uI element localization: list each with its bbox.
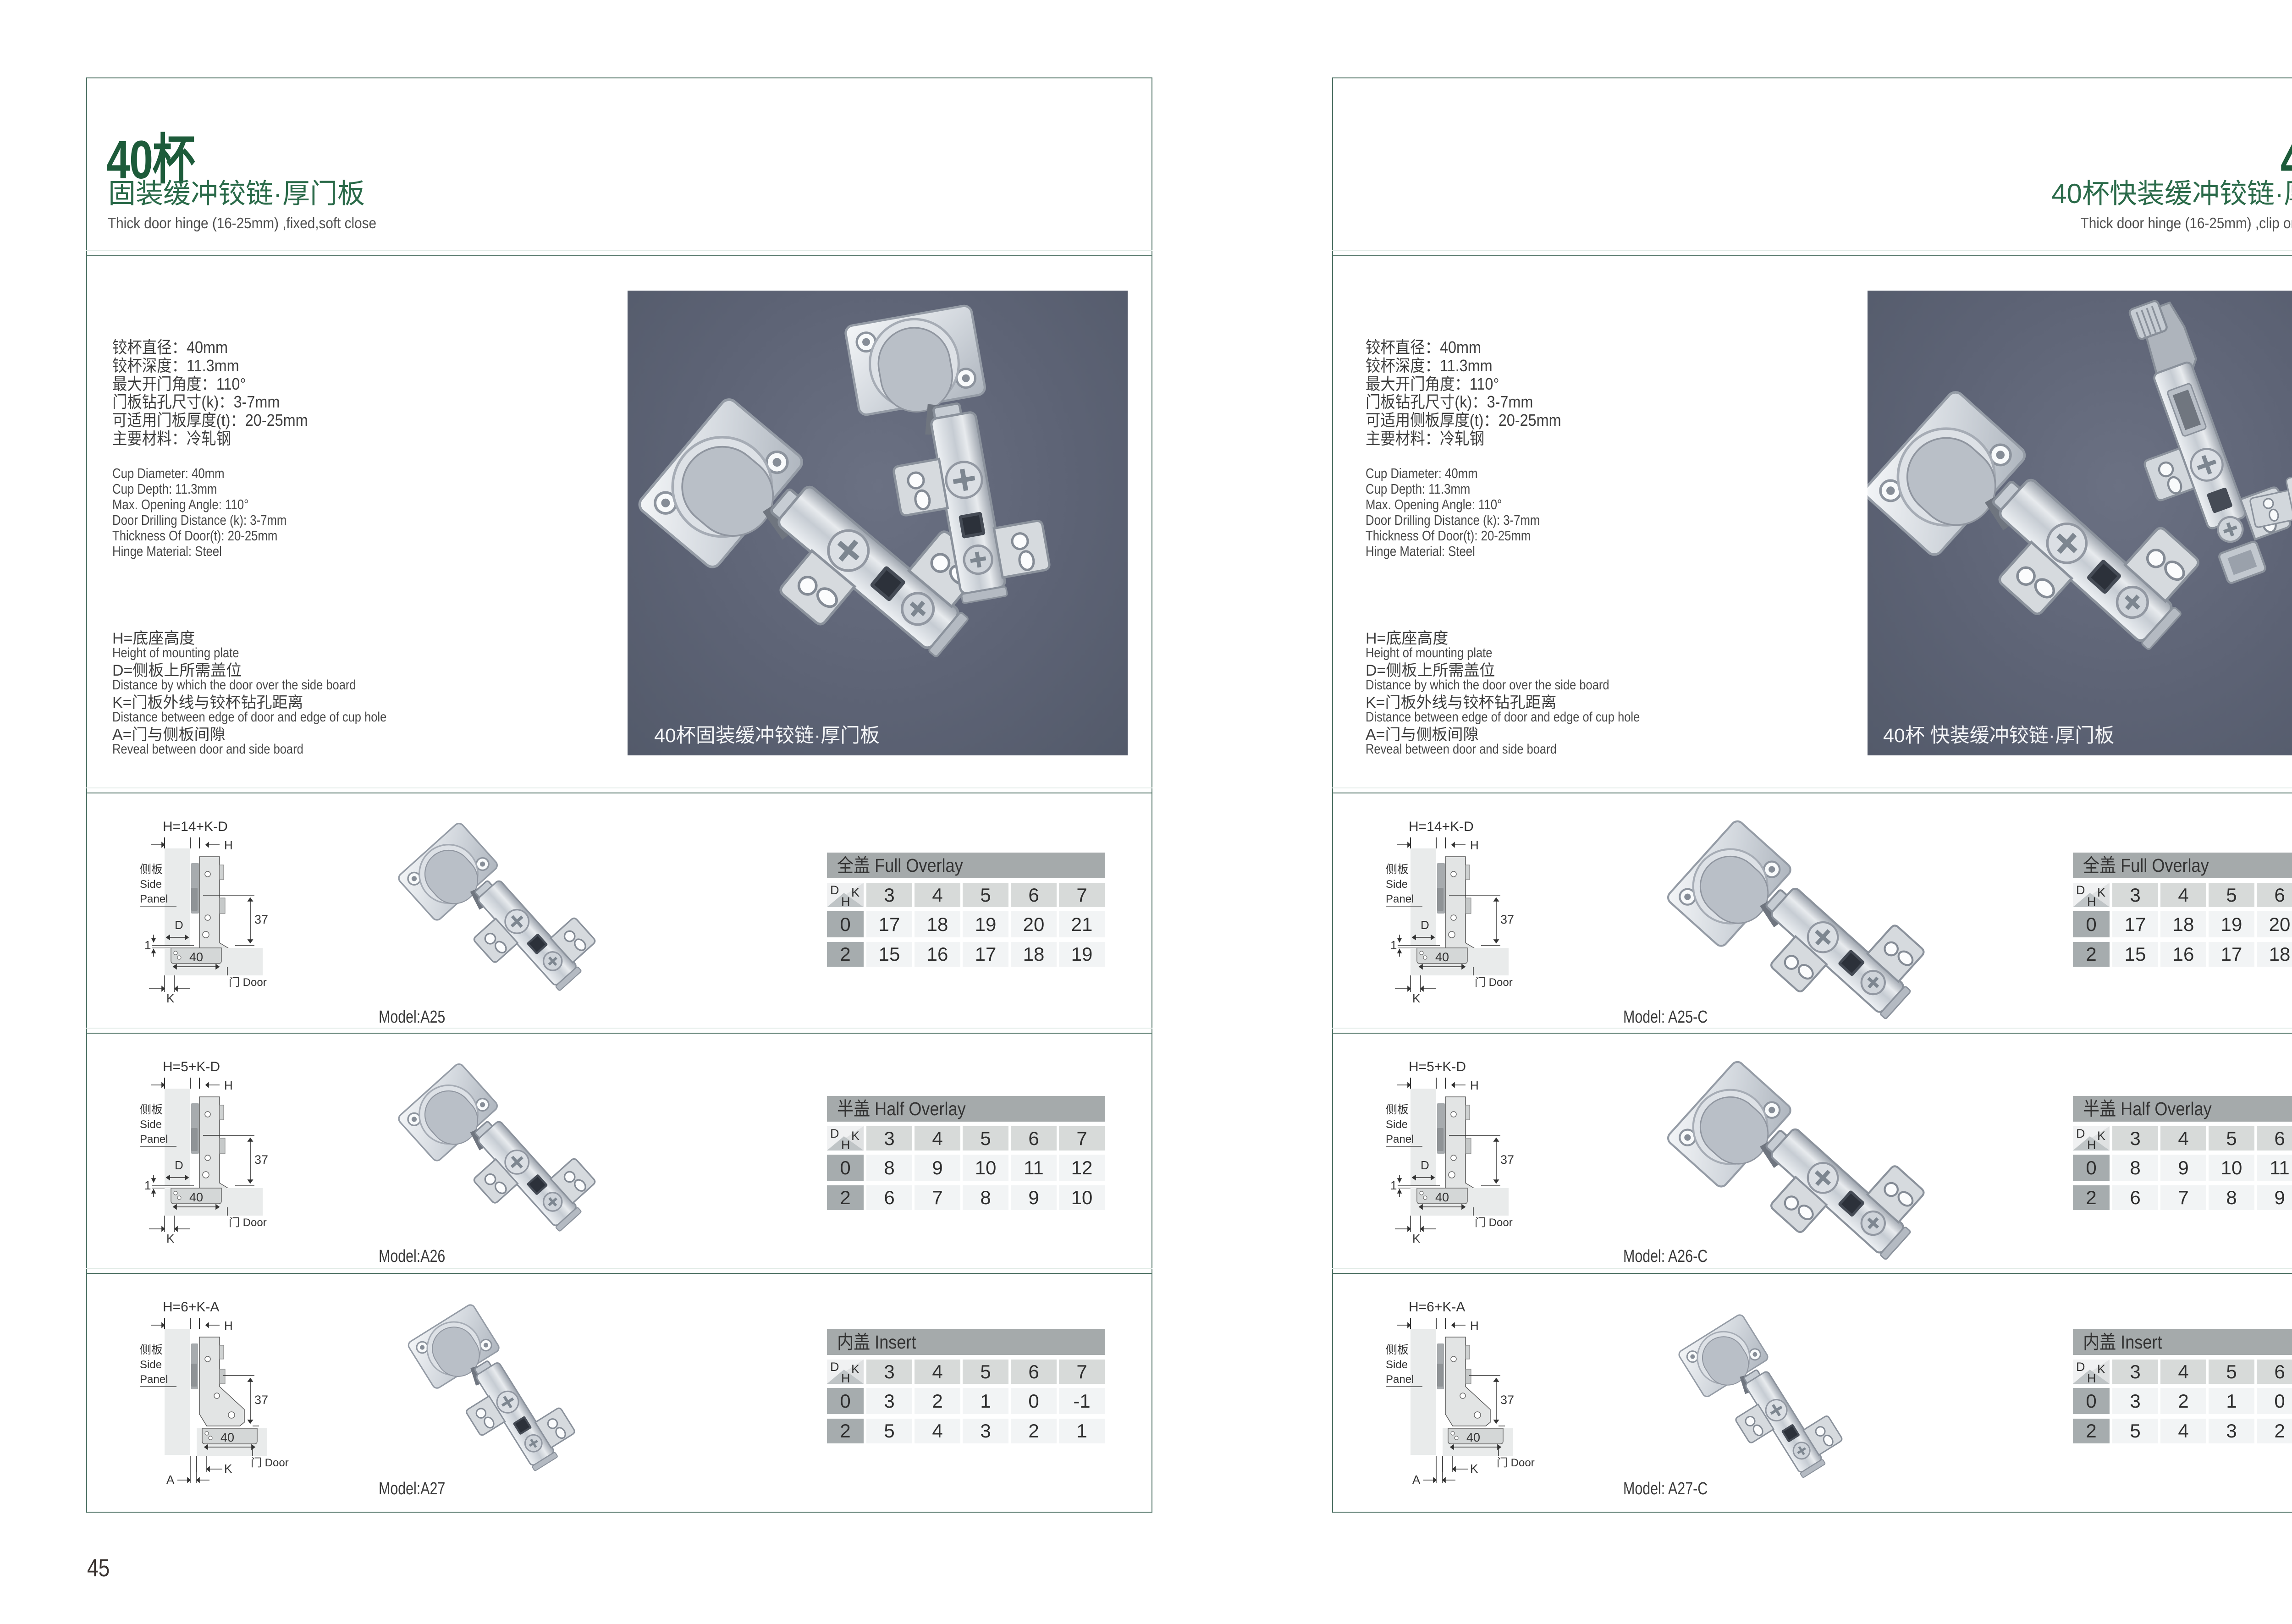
svg-text:40: 40 bbox=[189, 950, 203, 964]
svg-text:Panel: Panel bbox=[140, 893, 168, 905]
svg-text:Panel: Panel bbox=[1386, 1133, 1414, 1145]
svg-text:A: A bbox=[1412, 1473, 1421, 1486]
svg-text:A: A bbox=[166, 1473, 175, 1486]
svg-text:门 Door: 门 Door bbox=[229, 976, 267, 989]
svg-text:40: 40 bbox=[1435, 950, 1449, 964]
svg-text:D: D bbox=[2076, 1360, 2085, 1374]
svg-text:门 Door: 门 Door bbox=[1475, 1217, 1513, 1229]
svg-text:Panel: Panel bbox=[1386, 1373, 1414, 1386]
svg-text:H: H bbox=[1470, 1079, 1479, 1092]
svg-text:H=14+K-D: H=14+K-D bbox=[163, 819, 228, 834]
svg-text:40: 40 bbox=[1435, 1190, 1449, 1204]
svg-text:37: 37 bbox=[1500, 1153, 1514, 1167]
svg-text:H: H bbox=[224, 1319, 233, 1332]
svg-text:H: H bbox=[224, 838, 233, 852]
svg-text:门 Door: 门 Door bbox=[251, 1457, 289, 1469]
svg-text:H: H bbox=[841, 1138, 850, 1151]
svg-text:37: 37 bbox=[254, 1393, 268, 1407]
svg-text:K: K bbox=[2097, 1362, 2105, 1376]
svg-text:40: 40 bbox=[220, 1431, 234, 1444]
svg-text:1: 1 bbox=[144, 1178, 151, 1192]
svg-text:H=6+K-A: H=6+K-A bbox=[163, 1299, 219, 1315]
svg-text:Side: Side bbox=[1386, 1359, 1408, 1371]
svg-text:37: 37 bbox=[254, 1153, 268, 1167]
svg-text:侧板: 侧板 bbox=[1386, 1343, 1409, 1356]
svg-text:H: H bbox=[2087, 1138, 2096, 1151]
svg-text:1: 1 bbox=[144, 938, 151, 952]
svg-text:H: H bbox=[2087, 895, 2096, 907]
svg-text:37: 37 bbox=[1500, 1393, 1514, 1407]
svg-text:Side: Side bbox=[1386, 878, 1408, 891]
svg-text:D: D bbox=[830, 1127, 839, 1140]
svg-text:Side: Side bbox=[1386, 1118, 1408, 1131]
svg-text:Side: Side bbox=[140, 1118, 162, 1131]
svg-text:K: K bbox=[851, 1129, 859, 1143]
svg-text:K: K bbox=[1470, 1462, 1478, 1475]
svg-text:1: 1 bbox=[1390, 938, 1397, 952]
svg-text:H=5+K-D: H=5+K-D bbox=[1409, 1059, 1466, 1074]
svg-text:H=5+K-D: H=5+K-D bbox=[163, 1059, 220, 1074]
svg-text:H=6+K-A: H=6+K-A bbox=[1409, 1299, 1465, 1315]
svg-text:侧板: 侧板 bbox=[140, 1103, 163, 1116]
svg-text:D: D bbox=[2076, 883, 2085, 897]
svg-text:侧板: 侧板 bbox=[1386, 1103, 1409, 1116]
svg-text:侧板: 侧板 bbox=[140, 1343, 163, 1356]
svg-text:门 Door: 门 Door bbox=[229, 1217, 267, 1229]
svg-text:D: D bbox=[175, 1158, 183, 1172]
svg-text:K: K bbox=[166, 1232, 175, 1245]
svg-text:40: 40 bbox=[1466, 1431, 1480, 1444]
svg-text:K: K bbox=[166, 991, 175, 1005]
svg-text:H: H bbox=[1470, 1319, 1479, 1332]
svg-text:K: K bbox=[1412, 1232, 1421, 1245]
svg-text:H: H bbox=[2087, 1371, 2096, 1384]
svg-text:D: D bbox=[830, 883, 839, 897]
svg-text:H=14+K-D: H=14+K-D bbox=[1409, 819, 1474, 834]
svg-text:K: K bbox=[851, 886, 859, 899]
svg-text:H: H bbox=[1470, 838, 1479, 852]
svg-text:Side: Side bbox=[140, 878, 162, 891]
svg-text:门 Door: 门 Door bbox=[1497, 1457, 1535, 1469]
svg-text:K: K bbox=[224, 1462, 232, 1475]
svg-text:K: K bbox=[851, 1362, 859, 1376]
svg-text:D: D bbox=[1421, 1158, 1429, 1172]
svg-text:侧板: 侧板 bbox=[140, 863, 163, 876]
svg-text:D: D bbox=[830, 1360, 839, 1374]
svg-text:Panel: Panel bbox=[140, 1373, 168, 1386]
svg-text:侧板: 侧板 bbox=[1386, 863, 1409, 876]
svg-text:37: 37 bbox=[254, 913, 268, 926]
svg-text:K: K bbox=[1412, 991, 1421, 1005]
svg-text:H: H bbox=[841, 1371, 850, 1384]
svg-text:Panel: Panel bbox=[140, 1133, 168, 1145]
svg-text:K: K bbox=[2097, 1129, 2105, 1143]
svg-text:K: K bbox=[2097, 886, 2105, 899]
svg-text:D: D bbox=[1421, 918, 1429, 932]
svg-text:37: 37 bbox=[1500, 913, 1514, 926]
svg-text:D: D bbox=[2076, 1127, 2085, 1140]
svg-text:H: H bbox=[224, 1079, 233, 1092]
svg-text:Side: Side bbox=[140, 1359, 162, 1371]
svg-text:H: H bbox=[841, 895, 850, 907]
svg-text:40: 40 bbox=[189, 1190, 203, 1204]
svg-text:1: 1 bbox=[1390, 1178, 1397, 1192]
svg-text:Panel: Panel bbox=[1386, 893, 1414, 905]
svg-text:D: D bbox=[175, 918, 183, 932]
svg-text:门 Door: 门 Door bbox=[1475, 976, 1513, 989]
